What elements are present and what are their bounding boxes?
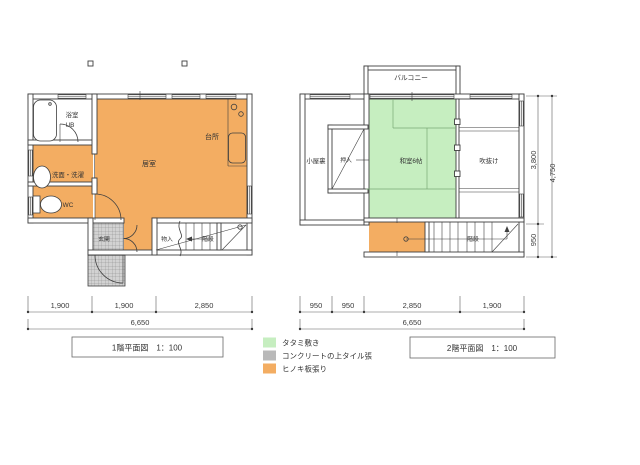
floor2-title-box: 2階平面図1：100 xyxy=(410,337,555,358)
dim-f1-total: 6,650 xyxy=(131,318,150,327)
floor2-plan: バルコニー 小屋裏 押入 和室6帖 吹抜け 階段 xyxy=(300,66,524,257)
marker-square xyxy=(88,61,93,66)
window-icon xyxy=(58,95,86,98)
window-icon xyxy=(520,101,523,126)
marker-square xyxy=(182,61,187,66)
label-entrance: 玄関 xyxy=(98,235,110,243)
dim-f1-seg2: 1,900 xyxy=(115,301,134,310)
window-icon xyxy=(29,197,32,215)
dim-f2-right-total: 4,750 xyxy=(548,164,557,183)
window-icon xyxy=(310,95,350,98)
label-washitsu: 和室6帖 xyxy=(400,156,423,165)
label-balcony: バルコニー xyxy=(394,74,428,82)
floor1-dimensions: 1,900 1,900 2,850 6,650 xyxy=(27,296,253,330)
dim-f2-total: 6,650 xyxy=(403,318,422,327)
window-icon xyxy=(470,95,512,98)
legend-row-tile: コンクリートの上タイル張 xyxy=(263,351,372,361)
dim-f1-seg3: 2,850 xyxy=(195,301,214,310)
dim-f2-right-upper: 3,800 xyxy=(529,151,538,170)
floor1-title: 1階平面図 xyxy=(112,343,148,353)
floorplan-sheet: 浴室 UB 洗面・洗濯 WC 居室 台所 玄関 物入 階段 xyxy=(0,0,640,465)
window-icon xyxy=(206,95,236,98)
label-attic: 小屋裏 xyxy=(306,156,326,165)
dim-f2-seg4: 1,900 xyxy=(483,301,502,310)
label-kitchen: 台所 xyxy=(205,132,219,141)
toilet-icon xyxy=(33,196,62,213)
floor2-title: 2階平面図 xyxy=(447,343,483,353)
dim-f2-seg1: 950 xyxy=(310,301,323,310)
floor2-dimensions: 950 950 2,850 1,900 6,650 xyxy=(299,296,525,330)
label-storage: 物入 xyxy=(161,235,173,243)
dim-f2-seg3: 2,850 xyxy=(403,301,422,310)
legend-row-tatami: タタミ敷き xyxy=(263,338,320,348)
label-bathroom: 浴室 xyxy=(66,110,79,119)
label-wc: WC xyxy=(63,202,74,209)
label-stairs-f2: 階段 xyxy=(467,235,479,243)
svg-text:1階平面図1：100: 1階平面図1：100 xyxy=(112,343,183,353)
legend-chip-tatami xyxy=(263,338,276,348)
label-closet: 押入 xyxy=(340,156,352,164)
legend-label-tatami: タタミ敷き xyxy=(282,338,320,348)
floorplan-drawing: 浴室 UB 洗面・洗濯 WC 居室 台所 玄関 物入 階段 xyxy=(0,0,640,465)
dim-f1-seg1: 1,900 xyxy=(51,301,70,310)
floor2-room-fills xyxy=(366,99,456,253)
window-icon xyxy=(248,186,251,214)
window-icon xyxy=(29,150,32,176)
dim-f2-seg2: 950 xyxy=(342,301,355,310)
porch-tile-area xyxy=(88,255,125,286)
label-void: 吹抜け xyxy=(479,156,498,165)
dim-f2-right-lower: 950 xyxy=(529,234,538,247)
window-icon xyxy=(520,194,523,217)
legend-label-tile: コンクリートの上タイル張 xyxy=(282,352,372,361)
entrance-hall-area xyxy=(124,220,153,252)
bathtub-icon xyxy=(34,100,57,141)
label-living: 居室 xyxy=(142,159,156,168)
label-washroom: 洗面・洗濯 xyxy=(52,170,85,179)
washbasin-icon xyxy=(34,166,51,188)
legend: タタミ敷き コンクリートの上タイル張 ヒノキ板張り xyxy=(263,338,372,374)
svg-text:2階平面図1：100: 2階平面図1：100 xyxy=(447,343,518,353)
window-icon xyxy=(172,95,200,98)
window-icon xyxy=(128,95,166,98)
floor2-scale: 1：100 xyxy=(491,344,517,353)
hall-area xyxy=(369,222,425,253)
living-kitchen-area xyxy=(95,96,248,222)
floor2-right-dimensions: 3,800 950 4,750 xyxy=(526,95,557,258)
legend-row-hinoki: ヒノキ板張り xyxy=(263,364,327,374)
label-stairs-f1: 階段 xyxy=(202,235,214,243)
label-bath-ub: UB xyxy=(66,122,75,129)
floor1-title-box: 1階平面図1：100 xyxy=(72,337,223,357)
floor1-plan: 浴室 UB 洗面・洗濯 WC 居室 台所 玄関 物入 階段 xyxy=(28,61,252,286)
floor1-scale: 1：100 xyxy=(156,344,182,353)
legend-label-hinoki: ヒノキ板張り xyxy=(282,364,327,374)
legend-chip-hinoki xyxy=(263,364,276,374)
legend-chip-tile xyxy=(263,351,276,361)
